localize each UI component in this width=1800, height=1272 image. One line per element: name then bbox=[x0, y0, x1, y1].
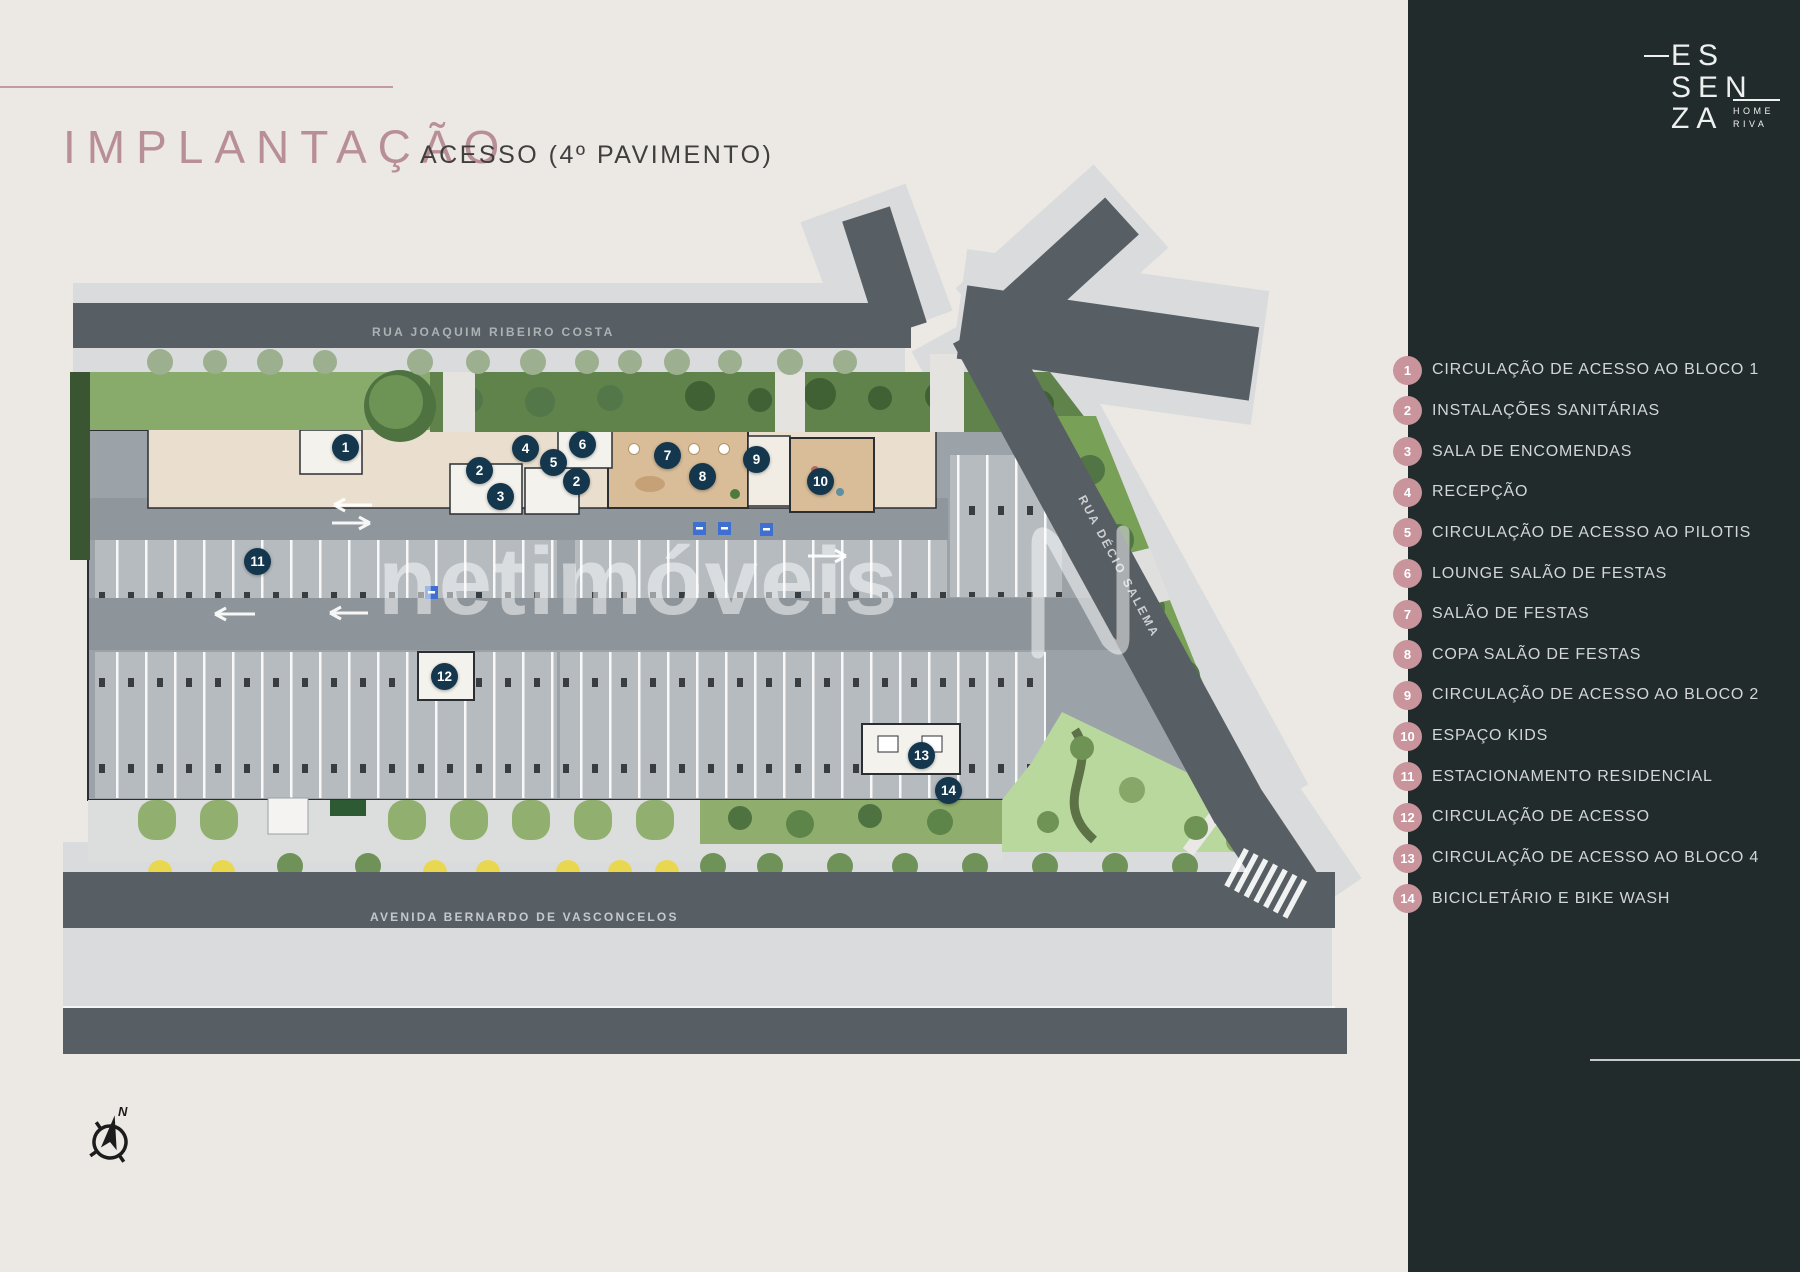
legend-number-badge: 8 bbox=[1393, 640, 1422, 669]
legend-item: 7SALÃO DE FESTAS bbox=[1393, 594, 1759, 635]
logo-bar bbox=[1644, 55, 1669, 57]
plan-marker: 11 bbox=[244, 548, 271, 575]
legend-label: SALA DE ENCOMENDAS bbox=[1432, 443, 1632, 461]
logo-line-3: ZA HOME RIVA bbox=[1671, 103, 1754, 135]
legend-number-badge: 12 bbox=[1393, 803, 1422, 832]
legend-item: 14BICICLETÁRIO E BIKE WASH bbox=[1393, 878, 1759, 919]
legend-label: BICICLETÁRIO E BIKE WASH bbox=[1432, 890, 1670, 908]
plan-marker: 2 bbox=[563, 468, 590, 495]
legend-item: 11ESTACIONAMENTO RESIDENCIAL bbox=[1393, 756, 1759, 797]
legend-label: ESPAÇO KIDS bbox=[1432, 727, 1548, 745]
legend-number-badge: 11 bbox=[1393, 762, 1422, 791]
legend-item: 10ESPAÇO KIDS bbox=[1393, 716, 1759, 757]
plan-marker: 13 bbox=[908, 742, 935, 769]
legend-item: 6LOUNGE SALÃO DE FESTAS bbox=[1393, 553, 1759, 594]
plan-marker: 4 bbox=[512, 435, 539, 462]
legend-item: 8COPA SALÃO DE FESTAS bbox=[1393, 634, 1759, 675]
legend-label: ESTACIONAMENTO RESIDENCIAL bbox=[1432, 768, 1713, 786]
legend-item: 5CIRCULAÇÃO DE ACESSO AO PILOTIS bbox=[1393, 513, 1759, 554]
legend-number-badge: 13 bbox=[1393, 844, 1422, 873]
plan-marker: 3 bbox=[487, 483, 514, 510]
logo-line-1: ES bbox=[1671, 40, 1754, 72]
plan-marker: 1 bbox=[332, 434, 359, 461]
legend-number-badge: 10 bbox=[1393, 722, 1422, 751]
legend-label: COPA SALÃO DE FESTAS bbox=[1432, 646, 1641, 664]
plan-marker: 9 bbox=[743, 446, 770, 473]
legend-label: LOUNGE SALÃO DE FESTAS bbox=[1432, 565, 1667, 583]
plan-marker: 5 bbox=[540, 449, 567, 476]
sidebar: ES SEN ZA HOME RIVA 1CIRCULAÇÃO DE ACESS… bbox=[1408, 0, 1800, 1272]
legend-label: RECEPÇÃO bbox=[1432, 483, 1528, 501]
plan-marker: 8 bbox=[689, 463, 716, 490]
legend-item: 9CIRCULAÇÃO DE ACESSO AO BLOCO 2 bbox=[1393, 675, 1759, 716]
legend-number-badge: 3 bbox=[1393, 437, 1422, 466]
legend-item: 12CIRCULAÇÃO DE ACESSO bbox=[1393, 797, 1759, 838]
page-subtitle: ACESSO (4º PAVIMENTO) bbox=[420, 143, 773, 168]
logo-subtitle: HOME RIVA bbox=[1733, 99, 1780, 132]
plan-marker: 12 bbox=[431, 663, 458, 690]
page: RUA JOAQUIM RIBEIRO COSTA RUA DÉCIO SALE… bbox=[0, 0, 1800, 1272]
legend-number-badge: 5 bbox=[1393, 518, 1422, 547]
legend-item: 1CIRCULAÇÃO DE ACESSO AO BLOCO 1 bbox=[1393, 350, 1759, 391]
legend-number-badge: 2 bbox=[1393, 396, 1422, 425]
site-plan: RUA JOAQUIM RIBEIRO COSTA RUA DÉCIO SALE… bbox=[0, 0, 1408, 1272]
plan-marker: 2 bbox=[466, 457, 493, 484]
legend-label: CIRCULAÇÃO DE ACESSO AO BLOCO 2 bbox=[1432, 686, 1759, 704]
logo-subtitle-riva: RIVA bbox=[1733, 118, 1780, 132]
plan-marker: 10 bbox=[807, 468, 834, 495]
legend: 1CIRCULAÇÃO DE ACESSO AO BLOCO 1 2INSTAL… bbox=[1393, 350, 1759, 919]
legend-label: CIRCULAÇÃO DE ACESSO bbox=[1432, 808, 1650, 826]
compass-n-label: N bbox=[118, 1104, 128, 1119]
street-label-bottom: AVENIDA BERNARDO DE VASCONCELOS bbox=[370, 910, 679, 924]
plan-marker: 6 bbox=[569, 431, 596, 458]
plan-marker: 14 bbox=[935, 777, 962, 804]
legend-number-badge: 14 bbox=[1393, 884, 1422, 913]
legend-label: INSTALAÇÕES SANITÁRIAS bbox=[1432, 402, 1660, 420]
legend-label: CIRCULAÇÃO DE ACESSO AO PILOTIS bbox=[1432, 524, 1751, 542]
legend-item: 13CIRCULAÇÃO DE ACESSO AO BLOCO 4 bbox=[1393, 838, 1759, 879]
sidebar-bottom-rule bbox=[1590, 1059, 1800, 1061]
title-rule bbox=[0, 86, 393, 88]
watermark-text: netimóveis bbox=[378, 528, 900, 635]
compass-icon: N bbox=[90, 1104, 131, 1162]
logo-subtitle-home: HOME bbox=[1733, 105, 1780, 119]
legend-label: SALÃO DE FESTAS bbox=[1432, 605, 1590, 623]
legend-number-badge: 9 bbox=[1393, 681, 1422, 710]
legend-item: 3SALA DE ENCOMENDAS bbox=[1393, 431, 1759, 472]
street-label-top: RUA JOAQUIM RIBEIRO COSTA bbox=[372, 325, 615, 339]
plan-marker: 7 bbox=[654, 442, 681, 469]
legend-number-badge: 6 bbox=[1393, 559, 1422, 588]
legend-item: 2INSTALAÇÕES SANITÁRIAS bbox=[1393, 391, 1759, 432]
legend-number-badge: 4 bbox=[1393, 478, 1422, 507]
legend-label: CIRCULAÇÃO DE ACESSO AO BLOCO 1 bbox=[1432, 361, 1759, 379]
legend-number-badge: 1 bbox=[1393, 356, 1422, 385]
legend-label: CIRCULAÇÃO DE ACESSO AO BLOCO 4 bbox=[1432, 849, 1759, 867]
legend-number-badge: 7 bbox=[1393, 600, 1422, 629]
logo-subtitle-rule bbox=[1733, 99, 1780, 101]
developer-logo: ES SEN ZA HOME RIVA bbox=[1671, 40, 1754, 135]
legend-item: 4RECEPÇÃO bbox=[1393, 472, 1759, 513]
